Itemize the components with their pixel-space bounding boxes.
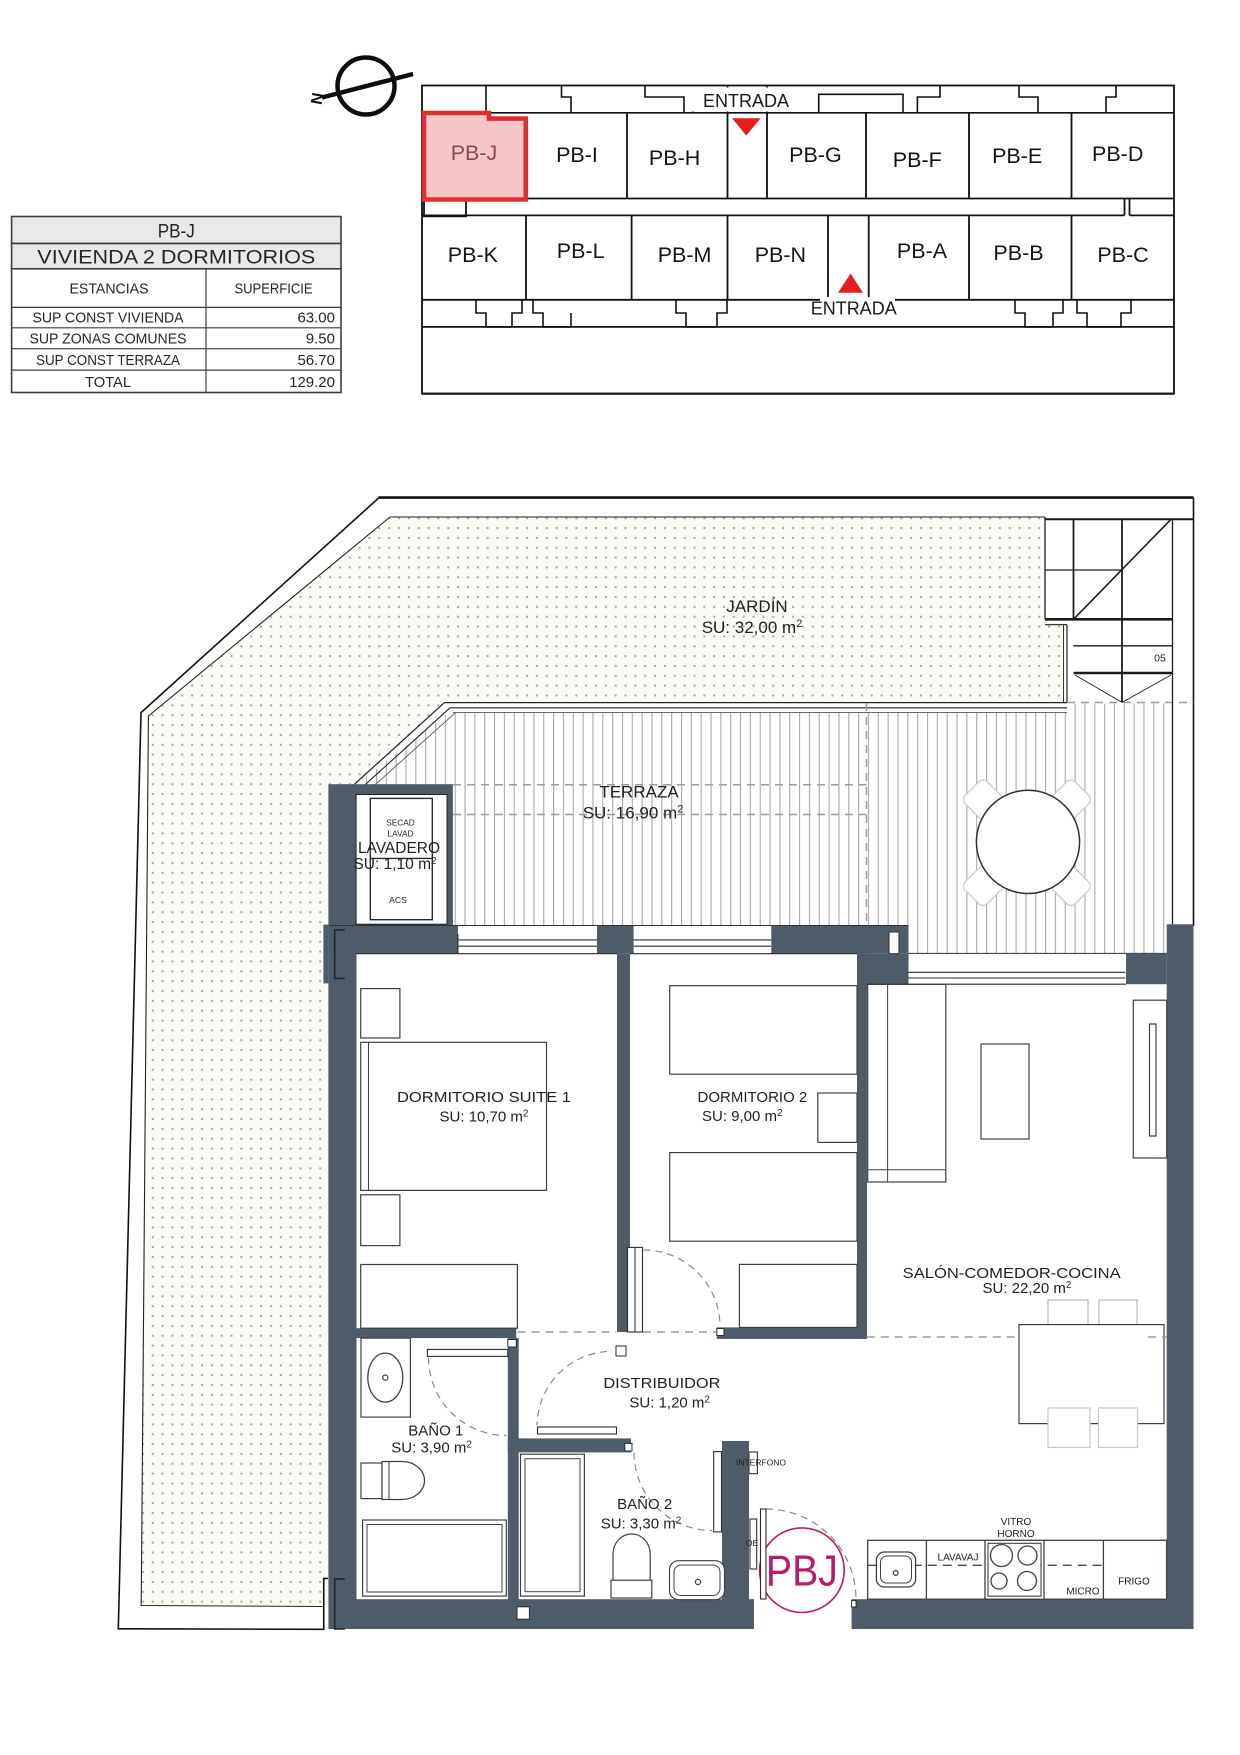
svg-text:ENTRADA: ENTRADA bbox=[811, 299, 897, 319]
svg-text:TERRAZA: TERRAZA bbox=[599, 783, 679, 802]
svg-text:FRIGO: FRIGO bbox=[1118, 1577, 1150, 1588]
svg-text:63.00: 63.00 bbox=[297, 310, 335, 327]
svg-text:PB-L: PB-L bbox=[557, 239, 605, 263]
svg-text:PB-E: PB-E bbox=[992, 144, 1042, 168]
svg-text:SU: 1,20 m2: SU: 1,20 m2 bbox=[629, 1395, 710, 1412]
svg-text:SU: 1,10 m2: SU: 1,10 m2 bbox=[353, 856, 437, 873]
svg-text:SU: 3,90 m2: SU: 3,90 m2 bbox=[391, 1440, 472, 1457]
svg-text:SU: 9,00 m2: SU: 9,00 m2 bbox=[702, 1108, 783, 1125]
svg-text:MICRO: MICRO bbox=[1066, 1587, 1100, 1598]
svg-text:SUP CONST VIVIENDA: SUP CONST VIVIENDA bbox=[33, 310, 184, 327]
svg-text:VIVIENDA 2 DORMITORIOS: VIVIENDA 2 DORMITORIOS bbox=[37, 247, 315, 269]
svg-text:129.20: 129.20 bbox=[289, 374, 335, 391]
svg-text:PB-M: PB-M bbox=[658, 243, 712, 267]
svg-text:PB-N: PB-N bbox=[755, 243, 806, 267]
svg-text:ESTANCIAS: ESTANCIAS bbox=[70, 281, 149, 298]
svg-text:SU: 3,30 m2: SU: 3,30 m2 bbox=[601, 1516, 682, 1533]
svg-text:SUPERFICIE: SUPERFICIE bbox=[235, 281, 313, 298]
svg-text:SU: 22,20 m2: SU: 22,20 m2 bbox=[983, 1280, 1072, 1297]
svg-text:PB-G: PB-G bbox=[789, 143, 842, 167]
svg-text:PB-J: PB-J bbox=[158, 221, 195, 243]
svg-text:LAVAVAJ: LAVAVAJ bbox=[938, 1553, 979, 1564]
svg-text:TOTAL: TOTAL bbox=[85, 374, 131, 391]
svg-text:INTERFONO: INTERFONO bbox=[736, 1458, 786, 1468]
svg-text:PB-C: PB-C bbox=[1097, 243, 1148, 267]
svg-text:ACS: ACS bbox=[389, 895, 407, 905]
svg-text:SUP ZONAS COMUNES: SUP ZONAS COMUNES bbox=[30, 331, 187, 348]
svg-text:SU: 32,00 m2: SU: 32,00 m2 bbox=[702, 618, 803, 637]
svg-text:SU: 16,90 m2: SU: 16,90 m2 bbox=[583, 804, 684, 823]
svg-text:OE: OE bbox=[746, 1538, 759, 1548]
svg-text:PB-J: PB-J bbox=[451, 141, 498, 165]
svg-text:56.70: 56.70 bbox=[297, 352, 335, 369]
svg-text:SUP CONST TERRAZA: SUP CONST TERRAZA bbox=[36, 352, 180, 369]
svg-text:DISTRIBUIDOR: DISTRIBUIDOR bbox=[603, 1375, 720, 1392]
svg-text:JARDÍN: JARDÍN bbox=[726, 597, 787, 616]
svg-text:LAVADERO: LAVADERO bbox=[358, 840, 440, 857]
svg-text:PB-I: PB-I bbox=[556, 143, 598, 167]
svg-text:SU: 10,70 m2: SU: 10,70 m2 bbox=[440, 1109, 529, 1126]
svg-text:PB-K: PB-K bbox=[448, 243, 499, 267]
svg-text:PB-H: PB-H bbox=[649, 146, 700, 170]
svg-text:PBJ: PBJ bbox=[766, 1547, 838, 1596]
svg-text:PB-D: PB-D bbox=[1092, 142, 1143, 166]
svg-text:BAÑO 2: BAÑO 2 bbox=[617, 1496, 672, 1513]
svg-text:PB-B: PB-B bbox=[993, 241, 1043, 265]
svg-text:PB-F: PB-F bbox=[893, 148, 942, 172]
svg-text:DORMITORIO 2: DORMITORIO 2 bbox=[698, 1089, 808, 1106]
svg-text:HORNO: HORNO bbox=[997, 1529, 1034, 1540]
svg-text:05: 05 bbox=[1154, 653, 1166, 665]
svg-text:ENTRADA: ENTRADA bbox=[703, 91, 789, 111]
svg-text:VITRO: VITRO bbox=[1001, 1517, 1032, 1528]
svg-text:PB-A: PB-A bbox=[897, 239, 948, 263]
svg-text:DORMITORIO SUITE 1: DORMITORIO SUITE 1 bbox=[397, 1089, 571, 1106]
svg-text:SECAD: SECAD bbox=[386, 818, 415, 828]
svg-text:BAÑO 1: BAÑO 1 bbox=[408, 1423, 463, 1440]
svg-text:LAVAD: LAVAD bbox=[388, 829, 414, 839]
svg-text:9.50: 9.50 bbox=[306, 331, 335, 348]
